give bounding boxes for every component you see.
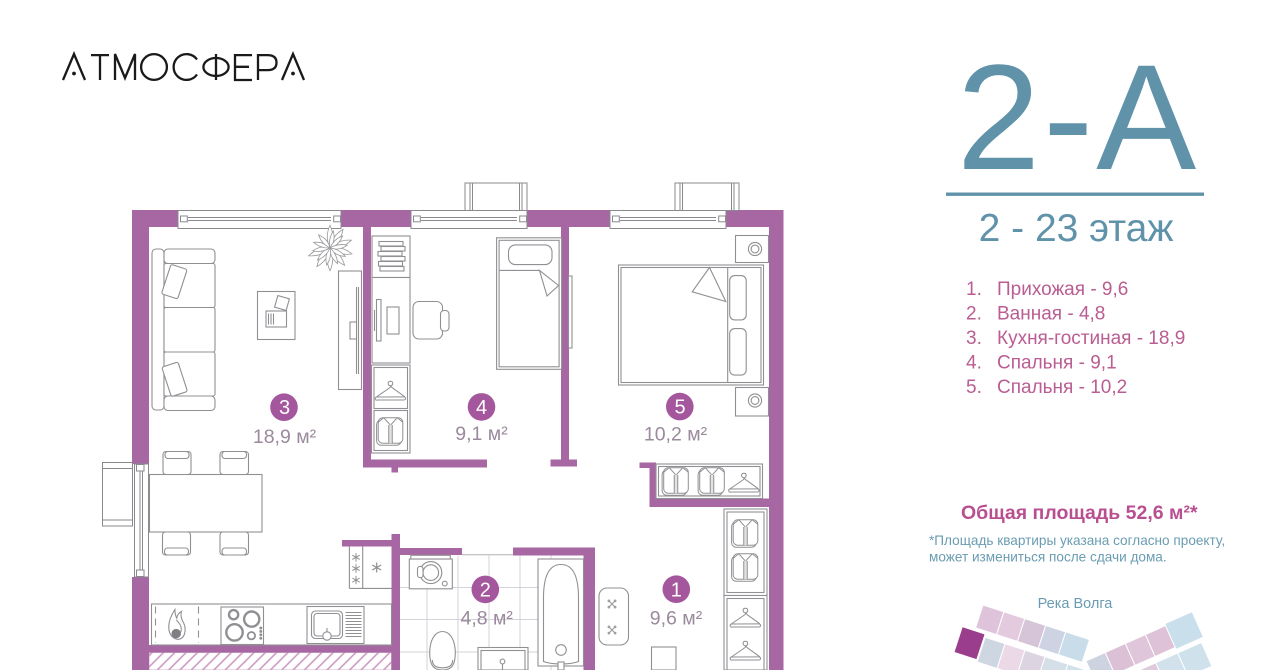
svg-text:1.: 1. bbox=[966, 279, 982, 300]
svg-text:5.: 5. bbox=[966, 377, 982, 398]
svg-text:*Площадь квартиры указана согл: *Площадь квартиры указана согласно проек… bbox=[929, 533, 1225, 548]
svg-text:2 - 23 этаж: 2 - 23 этаж bbox=[979, 207, 1174, 250]
svg-text:Спальня - 10,2: Спальня - 10,2 bbox=[997, 377, 1127, 398]
svg-text:Река Волга: Река Волга bbox=[1038, 596, 1114, 612]
svg-text:2: 2 bbox=[480, 580, 491, 602]
svg-text:18,9 м²: 18,9 м² bbox=[253, 426, 317, 448]
svg-text:3: 3 bbox=[279, 397, 290, 419]
svg-text:2-А: 2-А bbox=[957, 33, 1199, 201]
svg-text:Кухня-гостиная - 18,9: Кухня-гостиная - 18,9 bbox=[997, 328, 1185, 349]
svg-text:Ванная - 4,8: Ванная - 4,8 bbox=[997, 304, 1105, 325]
svg-text:Общая площадь 52,6 м²*: Общая площадь 52,6 м²* bbox=[961, 502, 1198, 524]
svg-text:4: 4 bbox=[476, 397, 487, 419]
svg-text:может измениться после сдачи д: может измениться после сдачи дома. bbox=[929, 550, 1167, 565]
svg-text:9,1 м²: 9,1 м² bbox=[455, 423, 508, 445]
svg-text:Спальня - 9,1: Спальня - 9,1 bbox=[997, 353, 1117, 374]
svg-text:2.: 2. bbox=[966, 304, 982, 325]
svg-text:5: 5 bbox=[674, 397, 685, 419]
svg-text:10,2 м²: 10,2 м² bbox=[644, 423, 708, 445]
svg-text:4,8 м²: 4,8 м² bbox=[460, 608, 513, 630]
svg-text:9,6 м²: 9,6 м² bbox=[650, 607, 703, 629]
svg-text:3.: 3. bbox=[966, 328, 982, 349]
svg-text:1: 1 bbox=[671, 579, 682, 601]
svg-text:4.: 4. bbox=[966, 353, 982, 374]
svg-text:Прихожая - 9,6: Прихожая - 9,6 bbox=[997, 279, 1128, 300]
